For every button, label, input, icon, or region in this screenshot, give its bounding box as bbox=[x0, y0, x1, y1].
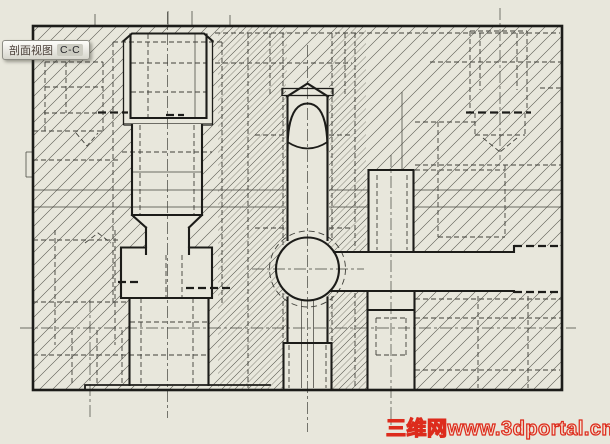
insert-top-fill bbox=[123, 33, 213, 125]
edge-ticks-above-border bbox=[95, 11, 230, 26]
section-view-label[interactable]: 剖面视图 C-C bbox=[2, 40, 90, 60]
section-view-label-name: 剖面视图 bbox=[9, 42, 53, 58]
watermark-text: 三维网www.3dportal.cn bbox=[386, 412, 610, 441]
hatch-sleeve-left bbox=[218, 27, 287, 389]
drawing-sheet: 剖面视图 C-C 三维网www.3dportal.cn bbox=[0, 0, 610, 444]
insert-body-fill bbox=[132, 125, 202, 215]
hatch-sleeve-right bbox=[330, 27, 366, 389]
section-view-drawing[interactable] bbox=[0, 0, 610, 444]
counterbore-fill bbox=[514, 246, 562, 292]
section-view-label-ref: C-C bbox=[57, 44, 83, 56]
cavity-fill bbox=[121, 247, 212, 298]
